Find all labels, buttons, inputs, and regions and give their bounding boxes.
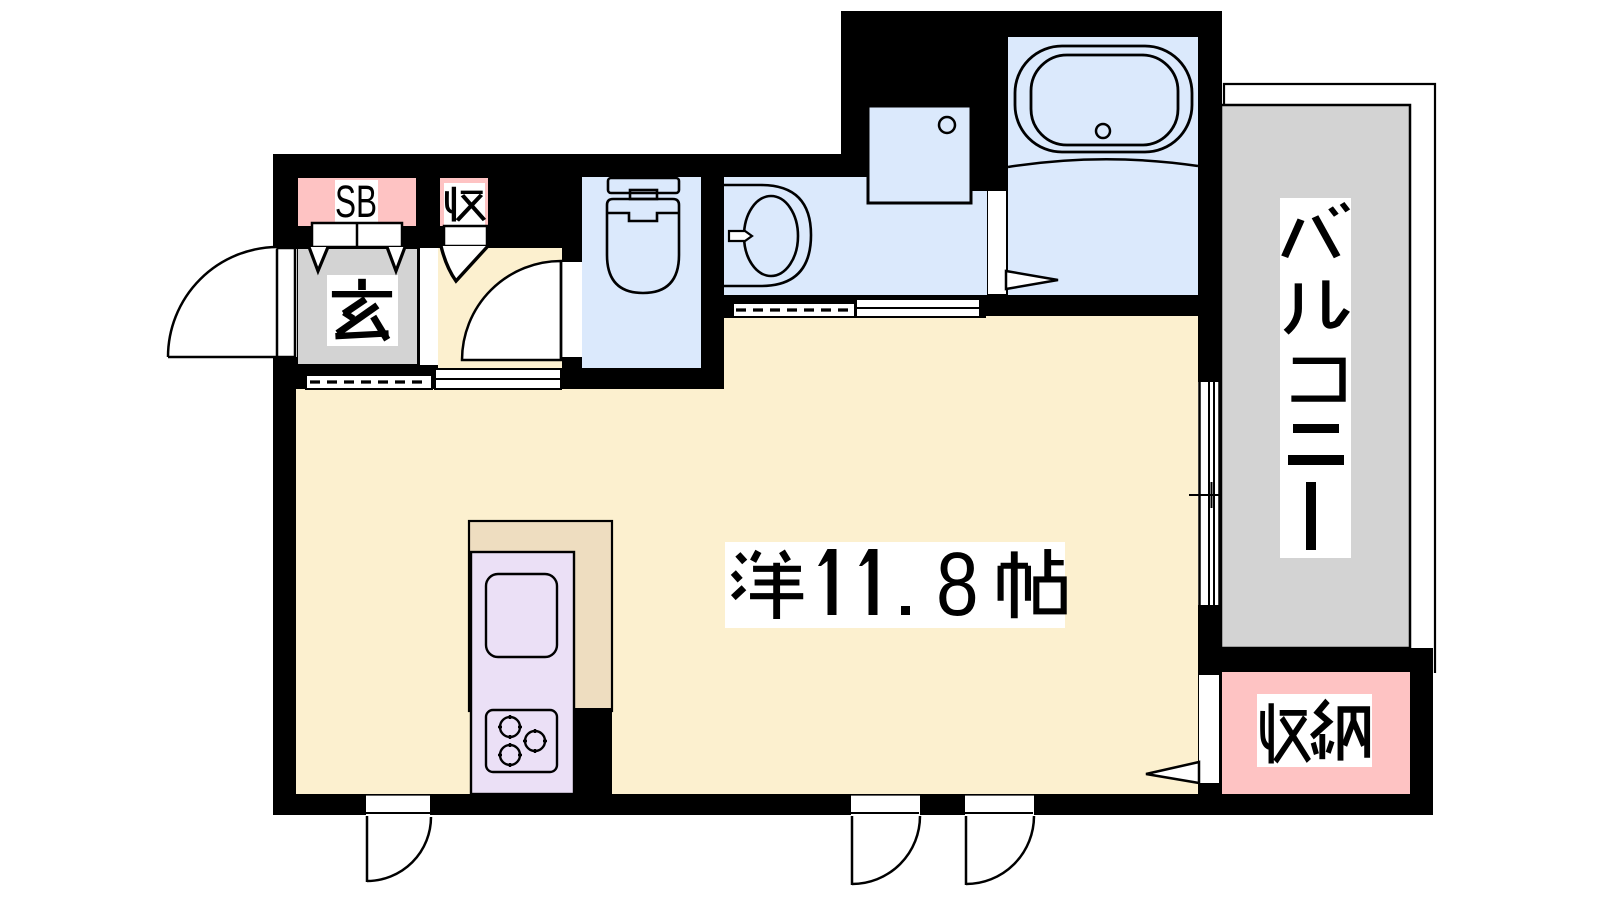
svg-text:SB: SB	[335, 176, 377, 227]
svg-text:8: 8	[936, 533, 979, 634]
